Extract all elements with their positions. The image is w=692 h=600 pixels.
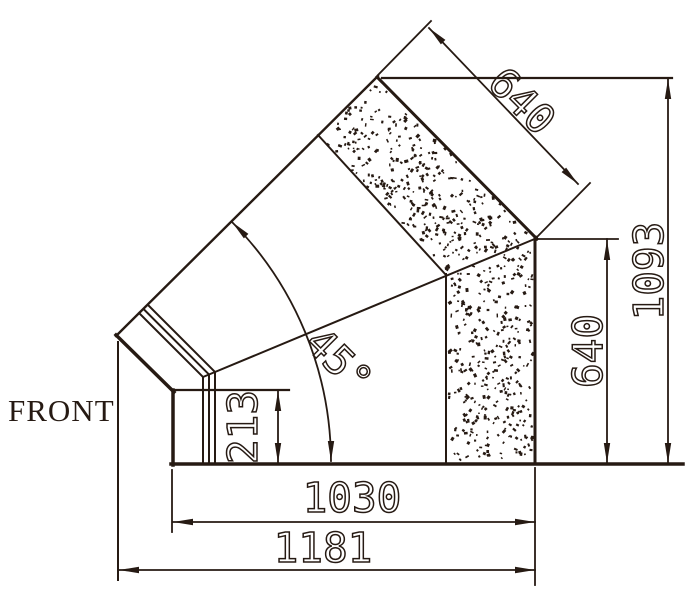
stipple-dot <box>498 277 500 279</box>
stipple-dot <box>505 407 509 412</box>
stipple-dot <box>528 286 531 289</box>
stipple-dot <box>520 452 523 456</box>
stipple-dot <box>391 168 395 172</box>
stipple-dot <box>451 239 454 241</box>
stipple-dot <box>514 371 517 374</box>
stipple-dot <box>379 91 381 93</box>
stipple-dot <box>513 337 517 340</box>
stipple-dot <box>421 174 425 178</box>
stipple-dot <box>412 144 415 147</box>
stipple-dot <box>352 149 356 153</box>
stipple-dot <box>505 344 508 348</box>
stipple-dot <box>439 242 442 244</box>
stipple-dot <box>479 234 482 237</box>
stipple-dot <box>522 424 525 427</box>
arrow-right-icon <box>515 567 535 573</box>
stipple-dot <box>390 148 392 150</box>
front-seam-diagonal-3 <box>148 305 215 372</box>
stipple-dot <box>503 387 506 391</box>
stipple-dot <box>510 290 515 295</box>
stipple-dot <box>434 152 437 154</box>
stipple-dot <box>443 172 445 174</box>
stipple-dot <box>510 406 513 409</box>
stipple-dot <box>367 146 370 149</box>
stipple-dot <box>450 277 453 280</box>
stipple-dot <box>371 174 374 177</box>
stipple-dot <box>479 446 482 448</box>
stipple-dot <box>506 244 510 248</box>
stipple-dot <box>516 268 519 271</box>
stipple-dot <box>484 383 488 386</box>
stipple-dot <box>483 349 485 351</box>
stipple-dot <box>450 437 454 442</box>
stipple-dot <box>464 323 467 326</box>
stipple-dot <box>433 179 436 182</box>
stipple-dot <box>365 161 369 164</box>
stipple-dot <box>442 206 446 211</box>
stipple-dot <box>337 123 339 126</box>
stipple-dot <box>460 246 464 250</box>
stipple-dot <box>363 179 365 182</box>
stipple-dot <box>357 138 360 140</box>
stipple-dot <box>500 267 502 269</box>
stipple-dot <box>463 218 466 220</box>
stipple-dot <box>386 139 389 143</box>
stipple-dot <box>515 436 519 440</box>
stipple-dot <box>503 351 506 355</box>
stipple-dot <box>473 198 475 201</box>
stipple-dot <box>484 414 486 416</box>
stipple-dot <box>482 379 485 382</box>
stipple-dot <box>394 205 396 208</box>
stipple-dot <box>518 318 521 321</box>
stipple-dot <box>461 222 463 224</box>
stipple-dot <box>484 248 488 253</box>
stipple-dot <box>503 359 507 363</box>
stipple-dot <box>348 130 352 134</box>
stipple-dot <box>484 226 488 230</box>
stipple-dot <box>502 325 506 329</box>
stipple-dot <box>502 441 505 444</box>
stipple-dot <box>465 288 468 292</box>
stipple-dot <box>527 408 530 411</box>
stipple-dot <box>520 392 522 395</box>
stipple-dot <box>494 387 496 389</box>
stipple-dot <box>497 382 500 385</box>
stipple-dot <box>506 357 509 359</box>
stipple-dot <box>484 352 487 354</box>
duct-elbow-drawing: 640 1093 640 45° 213 1030 <box>0 0 692 600</box>
stipple-dot <box>390 192 393 195</box>
front-seam-diagonal-2 <box>144 309 210 375</box>
stipple-dot <box>375 185 379 188</box>
stipple-dot <box>461 304 463 307</box>
stipple-dot <box>374 110 377 113</box>
stipple-dot <box>476 273 480 277</box>
stipple-dot <box>361 118 364 121</box>
stipple-dot <box>435 206 437 209</box>
stipple-dot <box>454 283 457 286</box>
stipple-dot <box>485 327 489 332</box>
stipple-dot <box>364 101 367 104</box>
stipple-dot <box>503 254 505 256</box>
stipple-dot <box>515 316 519 320</box>
stipple-dot <box>470 397 474 400</box>
stipple-dot <box>442 229 445 233</box>
stipple-dot <box>493 404 497 407</box>
arrow-down-icon <box>665 443 671 463</box>
stipple-dot <box>507 340 511 344</box>
stipple-dot <box>508 423 512 426</box>
stipple-dot <box>470 428 473 430</box>
stipple-dot <box>368 174 370 177</box>
stipple-dot <box>389 151 392 154</box>
arrow-down-icon <box>275 443 281 463</box>
stipple-dot <box>513 232 516 235</box>
front-label: FRONT <box>8 393 115 428</box>
stipple-dot <box>486 450 489 453</box>
stipple-dot <box>455 325 459 329</box>
stipple-dot <box>378 109 381 112</box>
stipple-dot <box>484 407 488 411</box>
stipple-dot <box>473 200 476 203</box>
stipple-dot <box>352 127 355 130</box>
stipple-dot <box>473 207 476 210</box>
stipple-dot <box>388 127 391 130</box>
stipple-dot <box>453 294 456 297</box>
stipple-dot <box>496 264 499 267</box>
stipple-dot <box>487 418 490 421</box>
stipple-dot <box>478 318 481 321</box>
stipple-dot <box>469 362 471 366</box>
stipple-dot <box>430 238 433 241</box>
stipple-dot <box>469 203 472 206</box>
stipple-dot <box>460 210 464 214</box>
stipple-dot <box>431 157 433 160</box>
stipple-dot <box>525 305 527 307</box>
stipple-dot <box>419 154 423 157</box>
arrow-down-right-icon <box>562 168 581 187</box>
stipple-dot <box>414 155 417 157</box>
stipple-dot <box>485 336 488 339</box>
stipple-dot <box>501 281 505 285</box>
stipple-dot <box>515 239 517 242</box>
stipple-dot <box>492 277 495 279</box>
stipple-dot <box>476 195 480 198</box>
stipple-dot <box>401 222 405 224</box>
stipple-dot <box>363 134 367 138</box>
stipple-dot <box>530 425 533 428</box>
stipple-dot <box>358 157 361 160</box>
stipple-dot <box>400 178 404 182</box>
stipple-dot <box>493 361 496 363</box>
stipple-dot <box>433 254 436 257</box>
stipple-dot <box>518 257 522 261</box>
stipple-dot <box>474 246 478 250</box>
stipple-dot <box>410 156 414 160</box>
stipple-dot <box>378 176 380 179</box>
stipple-dot <box>409 218 412 221</box>
stipple-dot <box>446 222 449 224</box>
stipple-dot <box>345 111 348 114</box>
stipple-dot <box>474 383 475 385</box>
stipple-dot <box>493 330 496 333</box>
stipple-dot <box>428 152 431 155</box>
stipple-dot <box>453 452 456 455</box>
stipple-dot <box>450 194 454 198</box>
stipple-dot <box>406 181 410 185</box>
stipple-dot <box>353 131 357 135</box>
stipple-dot <box>384 197 388 200</box>
stipple-dot <box>516 368 520 372</box>
stipple-dot <box>527 250 530 253</box>
stipple-dot <box>460 273 462 275</box>
stipple-dot <box>445 267 448 270</box>
stipple-dot <box>413 191 415 193</box>
stipple-dot <box>431 197 434 200</box>
stipple-dot <box>367 157 372 162</box>
stipple-dot <box>495 400 498 403</box>
stipple-dot <box>455 249 458 252</box>
stipple-dot <box>347 143 351 146</box>
stipple-dot <box>499 390 502 393</box>
stipple-dot <box>459 458 462 461</box>
stipple-dot <box>525 399 527 401</box>
extension-line <box>378 21 431 75</box>
stipple-dot <box>506 398 509 401</box>
stipple-dot <box>447 243 449 246</box>
stipple-dot <box>526 363 529 367</box>
stipple-dot <box>435 227 439 232</box>
stipple-dot <box>517 339 521 342</box>
stipple-dot <box>457 273 459 275</box>
stipple-dot <box>407 195 410 197</box>
stipple-dot <box>529 252 531 254</box>
stipple-dot <box>503 210 506 213</box>
stipple-dot <box>451 210 455 213</box>
stipple-dot <box>425 226 428 230</box>
arrow-arc-bottom-icon <box>328 441 334 461</box>
stipple-dot <box>480 337 482 340</box>
stipple-dot <box>351 165 354 167</box>
stipple-dot <box>433 174 436 177</box>
stipple-dot <box>395 158 399 162</box>
stipple-dot <box>488 267 491 270</box>
stipple-dot <box>338 144 343 148</box>
stipple-dot <box>467 249 471 252</box>
stipple-dot <box>475 188 479 191</box>
stipple-dot <box>354 128 358 132</box>
stipple-dot <box>418 138 421 141</box>
stipple-dot <box>406 174 409 178</box>
stipple-dot <box>523 445 526 448</box>
stipple-dot <box>453 348 457 352</box>
stipple-dot <box>517 405 520 408</box>
stipple-dot <box>418 186 421 189</box>
stipple-dot <box>482 361 485 363</box>
stipple-dot <box>472 356 475 358</box>
stipple-dot <box>419 175 421 177</box>
stipple-dot <box>388 115 391 117</box>
stipple-dot <box>497 314 499 318</box>
stipple-dot <box>410 207 413 210</box>
stipple-dot <box>443 248 446 251</box>
stipple-dot <box>481 407 483 410</box>
stipple-dot <box>464 232 467 235</box>
stipple-dot <box>486 239 490 241</box>
stipple-dot <box>521 405 525 409</box>
stipple-dot <box>455 161 457 163</box>
stipple-dot <box>466 441 470 445</box>
stipple-dot <box>441 169 444 173</box>
dim-right-port-height: 640 <box>538 239 618 464</box>
stipple-dot <box>370 119 374 121</box>
stipple-dot <box>359 109 362 111</box>
stipple-dot <box>361 164 365 167</box>
stipple-dot <box>406 223 409 226</box>
stipple-dot <box>482 395 485 399</box>
stipple-dot <box>481 223 485 227</box>
stipple-dot <box>473 242 476 244</box>
stipple-dot <box>402 196 406 200</box>
stipple-dot <box>421 211 425 216</box>
stipple-dot <box>521 254 525 258</box>
stipple-dot <box>354 106 357 108</box>
stipple-dot <box>490 241 493 243</box>
stipple-dot <box>449 366 453 370</box>
stipple-dot <box>462 258 465 261</box>
stipple-dot <box>348 112 352 116</box>
stipple-dot <box>456 452 459 455</box>
stipple-dot <box>360 132 363 135</box>
stipple-dot <box>511 413 515 417</box>
stipple-dot <box>412 212 416 216</box>
stipple-dot <box>507 381 511 385</box>
stipple-dot <box>494 300 497 303</box>
stipple-dot <box>529 449 532 451</box>
stipple-dot <box>506 377 510 380</box>
stipple-dot <box>498 364 501 367</box>
stipple-dot <box>409 200 412 203</box>
stipple-dot <box>455 310 459 313</box>
stipple-dot <box>483 288 485 290</box>
stipple-dot <box>507 240 510 243</box>
stipple-dot <box>448 392 451 395</box>
stipple-dot <box>392 160 394 163</box>
stipple-dot <box>497 434 500 437</box>
stipple-dot <box>369 89 372 91</box>
stipple-dot <box>465 455 469 458</box>
stipple-dot <box>483 270 485 272</box>
stipple-dot <box>457 300 459 302</box>
stipple-dot <box>389 132 392 135</box>
stipple-dot <box>512 428 516 432</box>
stipple-dot <box>425 173 429 177</box>
stipple-dot <box>495 344 498 347</box>
stipple-dot <box>479 248 481 251</box>
stipple-dot <box>465 308 468 310</box>
elbow-drawing-canvas: 640 1093 640 45° 213 1030 <box>0 0 692 600</box>
stipple-dot <box>448 396 451 399</box>
stipple-dot <box>420 147 422 149</box>
stipple-dot <box>520 439 522 441</box>
stipple-dot <box>476 232 479 235</box>
stipple-dot <box>516 423 520 426</box>
stipple-dot <box>508 338 510 340</box>
stipple-dot <box>505 307 506 309</box>
stipple-dot <box>344 117 347 120</box>
stipple-dot <box>504 275 506 278</box>
arrow-up-icon <box>604 240 610 260</box>
stipple-dot <box>373 85 377 88</box>
stipple-dot <box>522 291 526 295</box>
stipple-dot <box>509 355 513 359</box>
stipple-dot <box>483 300 485 302</box>
stipple-dot <box>458 285 462 289</box>
stipple-dot <box>422 188 425 191</box>
stipple-dot <box>375 179 378 181</box>
stipple-dot <box>515 328 518 330</box>
outer-heel-edge <box>116 76 378 336</box>
stipple-dot <box>456 290 460 294</box>
stipple-dot <box>517 265 519 267</box>
stipple-dot <box>486 436 489 439</box>
stipple-dot <box>504 311 508 315</box>
stipple-dot <box>477 360 480 363</box>
stipple-dot <box>435 233 439 236</box>
stipple-dot <box>355 141 357 143</box>
stipple-dot <box>527 443 530 447</box>
stipple-dot <box>352 141 355 144</box>
stipple-dot <box>487 351 490 355</box>
stipple-dot <box>504 265 506 267</box>
stipple-dot <box>478 404 481 406</box>
stipple-dot <box>443 255 446 258</box>
stipple-dot <box>527 278 529 280</box>
stipple-dot <box>507 388 509 390</box>
stipple-dot <box>502 429 507 434</box>
stipple-dot <box>486 377 488 380</box>
stipple-dot <box>492 422 494 425</box>
stipple-dot <box>429 212 432 216</box>
stipple-dot <box>523 365 525 367</box>
stipple-dot <box>392 120 396 124</box>
dim-label-45deg: 45° <box>296 318 382 404</box>
stipple-dot <box>530 278 533 280</box>
stipple-dot <box>456 353 458 355</box>
stipple-dot <box>427 228 431 232</box>
stipple-dot <box>462 190 464 192</box>
stipple-dot <box>484 416 487 420</box>
stipple-dot <box>501 359 504 362</box>
stipple-dot <box>477 223 479 225</box>
stipple-dot <box>478 455 481 458</box>
stipple-dot <box>415 133 420 138</box>
stipple-dot <box>494 249 497 253</box>
stipple-dot <box>503 317 507 321</box>
stipple-dot <box>469 180 471 182</box>
stipple-dot <box>413 125 416 128</box>
stipple-dot <box>496 332 500 336</box>
stipple-dot <box>348 106 351 109</box>
stipple-dot <box>375 133 378 136</box>
stipple-dot <box>467 273 470 275</box>
stipple-dot <box>434 222 436 224</box>
stipple-dot <box>469 434 471 437</box>
stipple-dot <box>484 246 487 249</box>
stipple-dot <box>400 161 403 164</box>
stipple-dot <box>438 197 441 200</box>
